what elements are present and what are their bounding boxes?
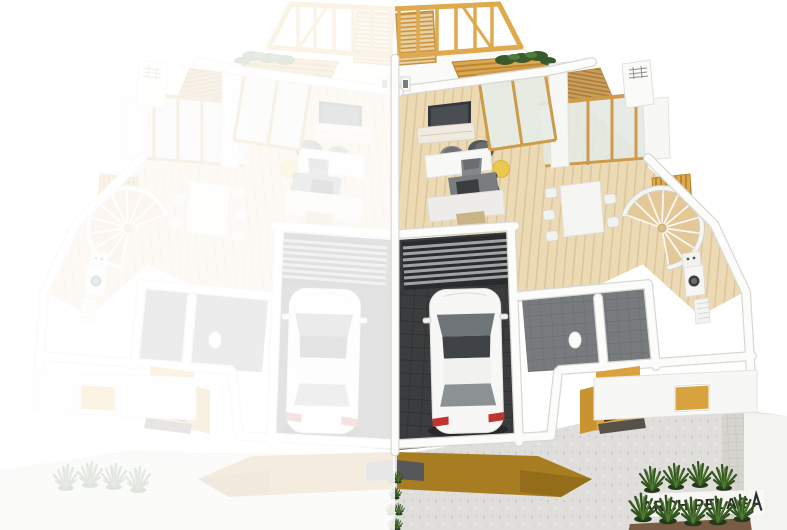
render-canvas: ARCHIPELAG	[0, 0, 787, 530]
ornamental-grasses-front	[628, 494, 755, 530]
ghost-overlay	[0, 0, 395, 530]
